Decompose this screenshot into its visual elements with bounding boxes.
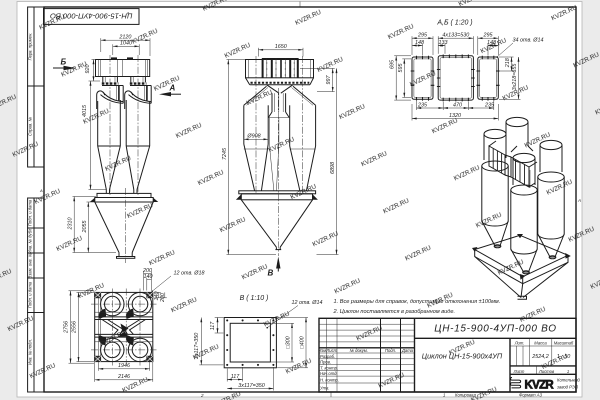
svg-text:2055: 2055 bbox=[82, 220, 88, 234]
svg-text:Листов: Листов bbox=[538, 369, 555, 374]
svg-text:295: 295 bbox=[483, 33, 494, 39]
svg-text:А: А bbox=[169, 84, 176, 93]
svg-text:695: 695 bbox=[390, 59, 396, 69]
svg-text:завод РЭП: завод РЭП bbox=[556, 385, 579, 390]
svg-text:1650: 1650 bbox=[275, 44, 287, 50]
svg-text:ЦН-15-900-4УП-000 ВО: ЦН-15-900-4УП-000 ВО bbox=[434, 324, 557, 335]
svg-text:Лист: Лист bbox=[513, 369, 525, 374]
svg-text:133: 133 bbox=[439, 40, 448, 46]
svg-text:Перв. примен.: Перв. примен. bbox=[27, 33, 32, 61]
svg-text:Масштаб: Масштаб bbox=[554, 341, 574, 346]
svg-text:□300: □300 bbox=[286, 336, 292, 348]
svg-text:2: 2 bbox=[200, 393, 204, 398]
svg-text:997: 997 bbox=[326, 75, 332, 85]
svg-text:Взам. инв. №: Взам. инв. № bbox=[27, 252, 32, 278]
svg-text:1946: 1946 bbox=[118, 363, 130, 369]
svg-text:ЦН-15-900-4УП-000 ВО: ЦН-15-900-4УП-000 ВО bbox=[50, 12, 132, 21]
svg-text:1: 1 bbox=[567, 369, 569, 374]
svg-text:2310: 2310 bbox=[68, 218, 74, 231]
svg-text:1: 1 bbox=[443, 393, 445, 398]
svg-text:А,Б ( 1:20 ): А,Б ( 1:20 ) bbox=[436, 20, 472, 27]
svg-text:Нач.отд.: Нач.отд. bbox=[320, 371, 338, 376]
svg-text:470: 470 bbox=[453, 103, 462, 109]
svg-text:Инв. № подл.: Инв. № подл. bbox=[27, 339, 32, 365]
svg-text:Инв. № дубл.: Инв. № дубл. bbox=[27, 228, 32, 254]
svg-text:3х117=350: 3х117=350 bbox=[238, 383, 264, 389]
svg-text:200: 200 bbox=[160, 293, 166, 303]
svg-text:Подп. и дата: Подп. и дата bbox=[27, 281, 32, 308]
svg-text:Циклон ЦН-15-900х4УП: Циклон ЦН-15-900х4УП bbox=[422, 352, 503, 361]
svg-text:3х117=350: 3х117=350 bbox=[194, 333, 200, 359]
svg-text:Масса: Масса bbox=[534, 341, 547, 346]
svg-text:117: 117 bbox=[231, 374, 241, 380]
svg-text:А: А bbox=[39, 188, 43, 193]
svg-text:Котельный: Котельный bbox=[557, 378, 580, 383]
svg-text:В ( 1:10 ): В ( 1:10 ) bbox=[240, 295, 269, 302]
svg-text:4х133=530: 4х133=530 bbox=[442, 33, 469, 39]
svg-text:2120: 2120 bbox=[118, 35, 131, 41]
svg-text:595: 595 bbox=[398, 63, 404, 73]
svg-text:140: 140 bbox=[144, 274, 153, 280]
svg-text:Ø908: Ø908 bbox=[246, 134, 260, 140]
svg-text:Разраб.: Разраб. bbox=[320, 354, 335, 359]
svg-text:№ докум.: № докум. bbox=[349, 348, 367, 353]
svg-text:34 отв. Ø14: 34 отв. Ø14 bbox=[513, 38, 544, 44]
svg-text:12 отв. Ø14: 12 отв. Ø14 bbox=[292, 300, 323, 306]
svg-text:1040: 1040 bbox=[120, 41, 132, 47]
svg-text:1 : 50: 1 : 50 bbox=[557, 354, 571, 360]
svg-text:7245: 7245 bbox=[222, 147, 228, 160]
svg-text:KVZR: KVZR bbox=[525, 380, 555, 392]
svg-text:Лист: Лист bbox=[325, 348, 337, 353]
svg-text:Лит.: Лит. bbox=[514, 341, 525, 346]
svg-text:Формат А3: Формат А3 bbox=[519, 393, 543, 398]
svg-text:Справ. №: Справ. № bbox=[27, 117, 32, 136]
svg-text:6898: 6898 bbox=[330, 162, 336, 174]
svg-text:2524,2: 2524,2 bbox=[531, 354, 549, 360]
svg-text:117: 117 bbox=[210, 321, 216, 331]
svg-text:2146: 2146 bbox=[117, 374, 130, 380]
svg-text:Дата: Дата bbox=[401, 348, 414, 353]
svg-text:Утв.: Утв. bbox=[320, 386, 330, 391]
svg-text:295: 295 bbox=[417, 33, 428, 39]
svg-text:235: 235 bbox=[417, 103, 428, 109]
svg-text:4015: 4015 bbox=[82, 104, 88, 117]
svg-text:148: 148 bbox=[415, 40, 424, 46]
svg-text:2756: 2756 bbox=[64, 321, 70, 334]
svg-text:235: 235 bbox=[484, 103, 495, 109]
svg-text:2556: 2556 bbox=[72, 321, 78, 334]
svg-text:148: 148 bbox=[487, 40, 496, 46]
svg-text:Т. контр.: Т. контр. bbox=[320, 365, 338, 370]
svg-text:3х218=655: 3х218=655 bbox=[512, 63, 518, 91]
svg-text:А: А bbox=[577, 198, 581, 203]
svg-text:Пров.: Пров. bbox=[320, 360, 331, 365]
svg-text:В: В bbox=[268, 269, 274, 278]
svg-text:2. Циклон поставляется в разоб: 2. Циклон поставляется в разобранном вид… bbox=[333, 309, 456, 315]
svg-text:Копировал: Копировал bbox=[455, 393, 476, 398]
svg-text:920: 920 bbox=[85, 65, 91, 74]
svg-text:Б: Б bbox=[61, 58, 67, 67]
svg-text:12 отв. Ø18: 12 отв. Ø18 bbox=[174, 271, 205, 277]
svg-text:Н. контр.: Н. контр. bbox=[320, 378, 339, 383]
svg-text:218: 218 bbox=[505, 58, 511, 68]
svg-text:1320: 1320 bbox=[449, 113, 461, 119]
svg-text:Подп. и дата: Подп. и дата bbox=[27, 199, 32, 226]
svg-text:1. Все размеры для справок, до: 1. Все размеры для справок, допустимые о… bbox=[334, 299, 501, 305]
svg-text:Подп.: Подп. bbox=[385, 348, 396, 353]
svg-text:□400: □400 bbox=[300, 336, 306, 348]
